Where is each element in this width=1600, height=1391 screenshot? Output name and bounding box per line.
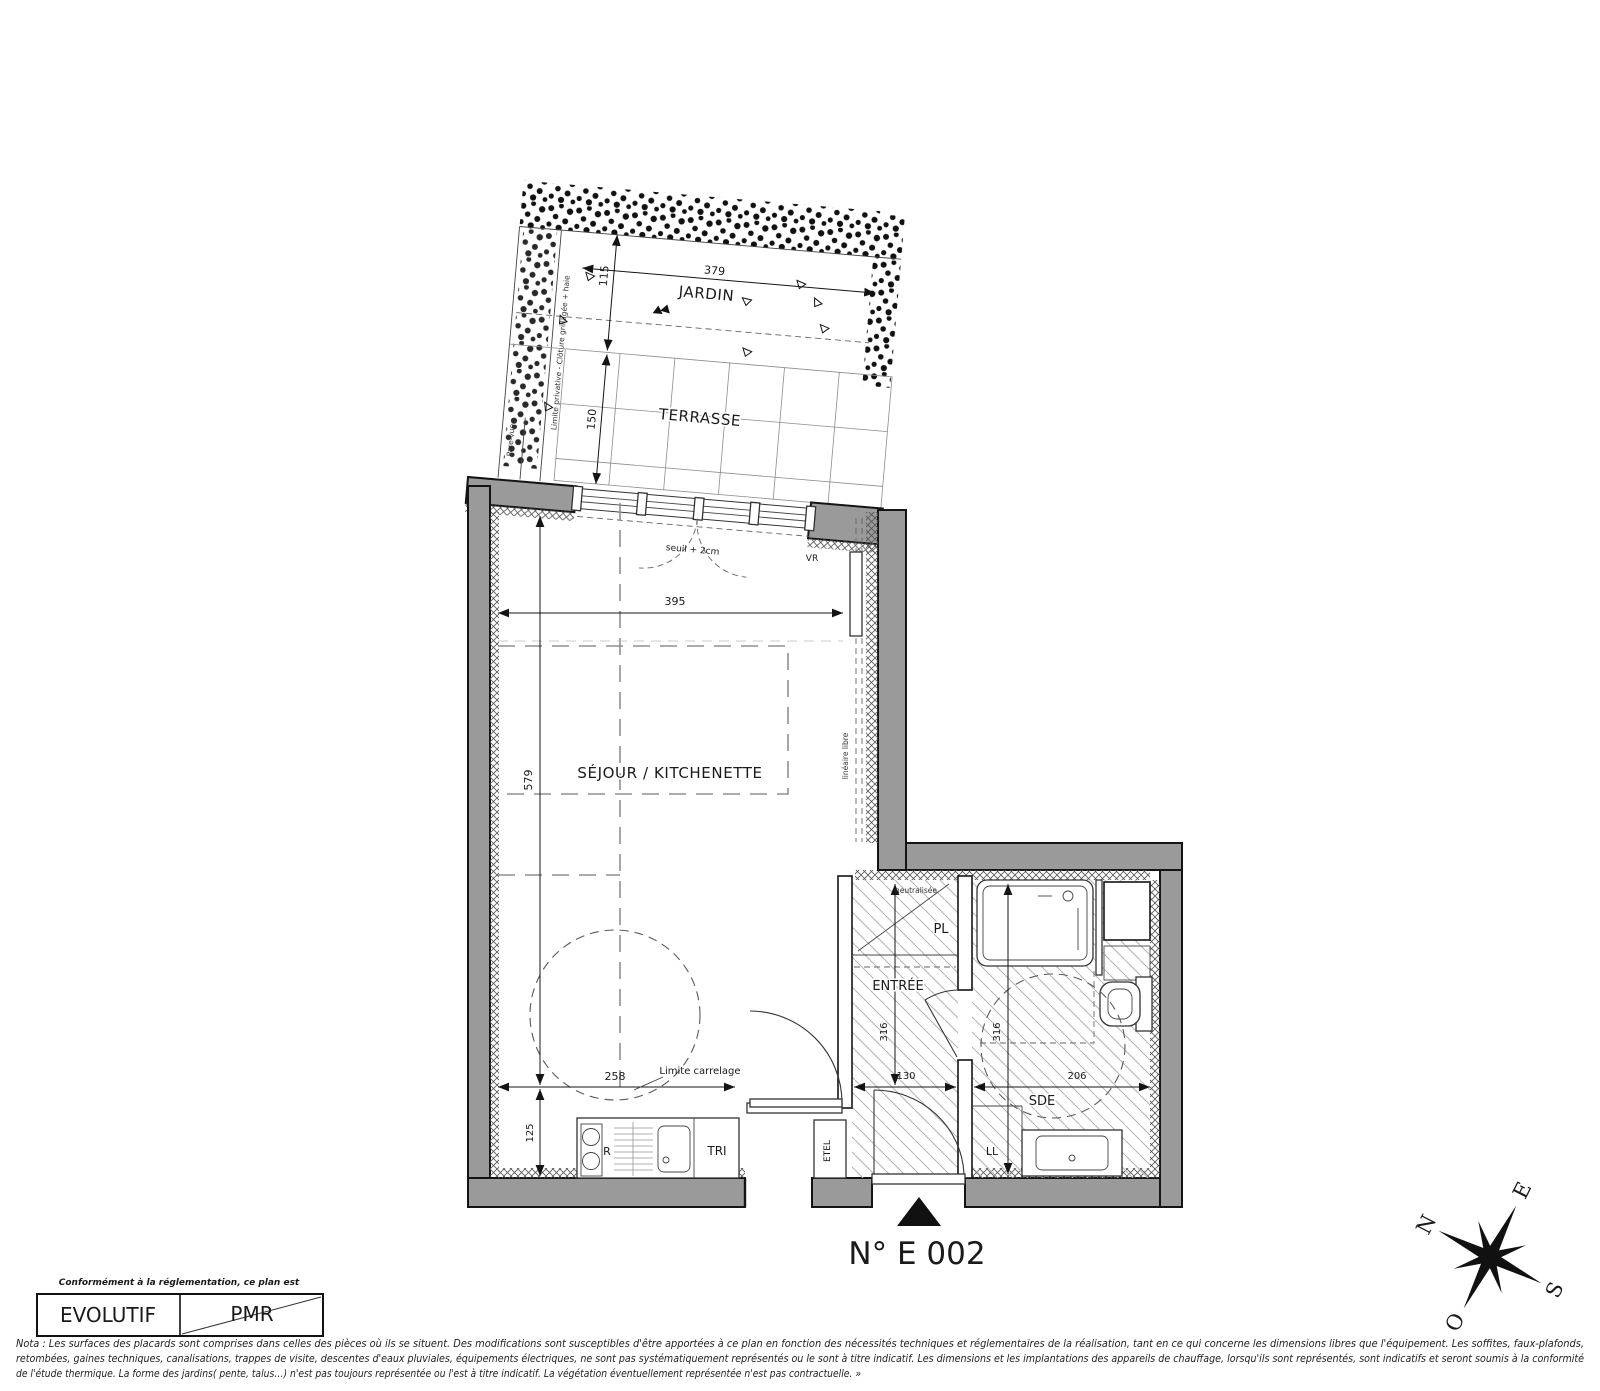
lineaire-libre-label: linéaire libre [841,732,850,779]
compass-north: N [1411,1211,1441,1238]
compass-rose-icon: N E S O [1378,1146,1600,1369]
dim-line-jardin-depth [607,235,617,351]
limite-carrelage: Limite carrelage [634,1066,741,1090]
legend-evolutif: EVOLUTIF [60,1303,156,1327]
sejour-label: SÉJOUR / KITCHENETTE [577,763,762,782]
legend-caption: Conformément à la réglementation, ce pla… [59,1277,300,1288]
washbasin [1022,1130,1122,1176]
entrance-arrow-icon [897,1197,941,1226]
jardin-label: JARDIN [677,282,735,305]
compass-star [1412,1179,1568,1335]
legend-pmr: PMR [230,1302,273,1326]
nota-text: Nota : Les surfaces des placards sont co… [16,1337,1584,1380]
dim-terrasse-depth: 150 [585,408,600,430]
shower [977,880,1093,966]
toilet [1100,977,1152,1031]
pl-label: PL [933,922,949,937]
terrasse-label: TERRASSE [657,405,742,430]
sejour-door-leaf [750,1099,842,1107]
nota-line-2: retombées, gaines techniques, canalisati… [16,1352,1584,1365]
dim-kitchen-width: 258 [605,1070,626,1083]
nota-line-1: Nota : Les surfaces des placards sont co… [16,1337,1584,1350]
etel-closet: ETEL [814,1120,846,1178]
compass-south: S [1541,1278,1569,1302]
nota-line-3: de l'étude thermique. La forme des jardi… [16,1367,861,1380]
bay-window [572,486,816,531]
dim-sde-width: 206 [1067,1071,1086,1082]
compass-east: E [1508,1178,1536,1203]
washer-label: LL [986,1145,999,1158]
sde-label: SDE [1029,1094,1055,1109]
dim-sejour-width: 395 [665,595,686,608]
unit-number: N° E 002 [848,1236,985,1272]
seuil-label: seuil + 2cm [665,543,719,558]
sejour-door-swing [750,1011,842,1103]
neutralisee-label: neutralisée [895,886,937,895]
garden-terrace-zone: Limite privative - Clôture grillagée + h… [462,178,909,588]
floor-plan-drawing: Limite privative - Clôture grillagée + h… [0,0,1600,1391]
garden-dashed-line [516,313,869,343]
dim-sde-depth: 316 [992,1022,1003,1041]
dim-entree-depth: 316 [879,1022,890,1041]
limite-carrelage-label: Limite carrelage [659,1066,740,1077]
regulation-legend: Conformément à la réglementation, ce pla… [37,1277,323,1336]
dim-jardin-depth: 115 [597,265,612,287]
fridge-label: R [603,1145,611,1158]
dim-kitchen-depth: 125 [525,1123,536,1142]
vr-label: VR [806,554,818,564]
etel-label: ETEL [823,1140,833,1162]
entry-threshold [872,1174,965,1184]
shower-screen [1096,880,1102,975]
compass-west: O [1440,1309,1469,1335]
dim-jardin-width: 379 [703,263,725,278]
dim-sejour-depth: 579 [522,770,535,791]
entree-label: ENTRÉE [872,978,923,994]
floor-plan-page: Limite privative - Clôture grillagée + h… [0,0,1600,1391]
duct-niche [1104,882,1150,940]
hedge-top [520,181,881,257]
roller-shutter-box [850,552,862,636]
dim-entree-width: 130 [896,1071,915,1082]
tri-label: TRI [706,1144,726,1158]
